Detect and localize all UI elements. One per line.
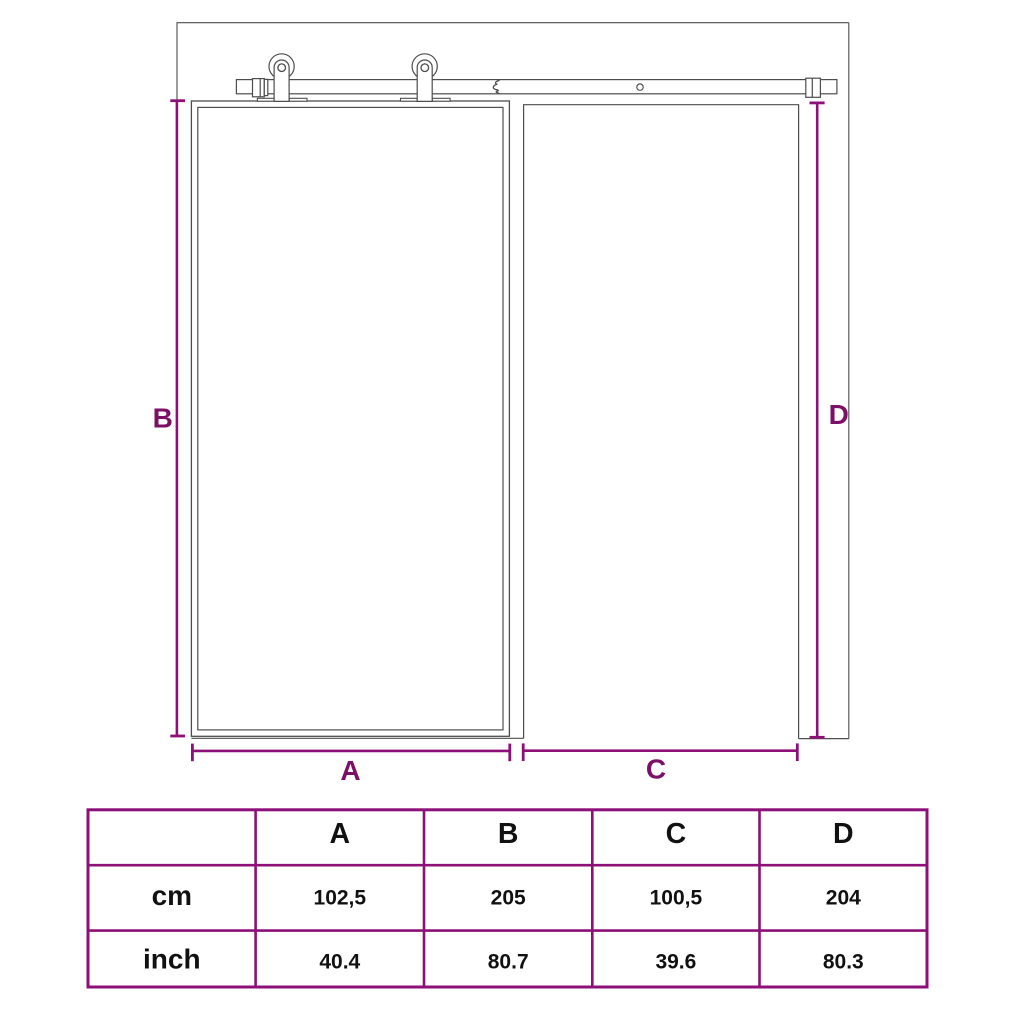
svg-text:C: C [666,818,687,850]
svg-text:A: A [330,818,351,850]
svg-text:A: A [340,755,360,786]
svg-text:B: B [153,402,173,433]
svg-text:B: B [498,818,519,850]
svg-text:80.7: 80.7 [488,951,529,974]
svg-text:80.3: 80.3 [823,951,864,974]
svg-text:cm: cm [152,880,192,911]
svg-text:102,5: 102,5 [314,886,367,909]
svg-text:D: D [833,818,854,850]
svg-text:C: C [646,753,666,784]
svg-text:40.4: 40.4 [319,951,360,974]
svg-text:39.6: 39.6 [655,951,696,974]
svg-text:205: 205 [491,886,526,909]
svg-text:100,5: 100,5 [650,886,703,909]
svg-text:204: 204 [826,886,861,909]
svg-text:D: D [829,399,849,430]
svg-text:inch: inch [143,943,201,974]
